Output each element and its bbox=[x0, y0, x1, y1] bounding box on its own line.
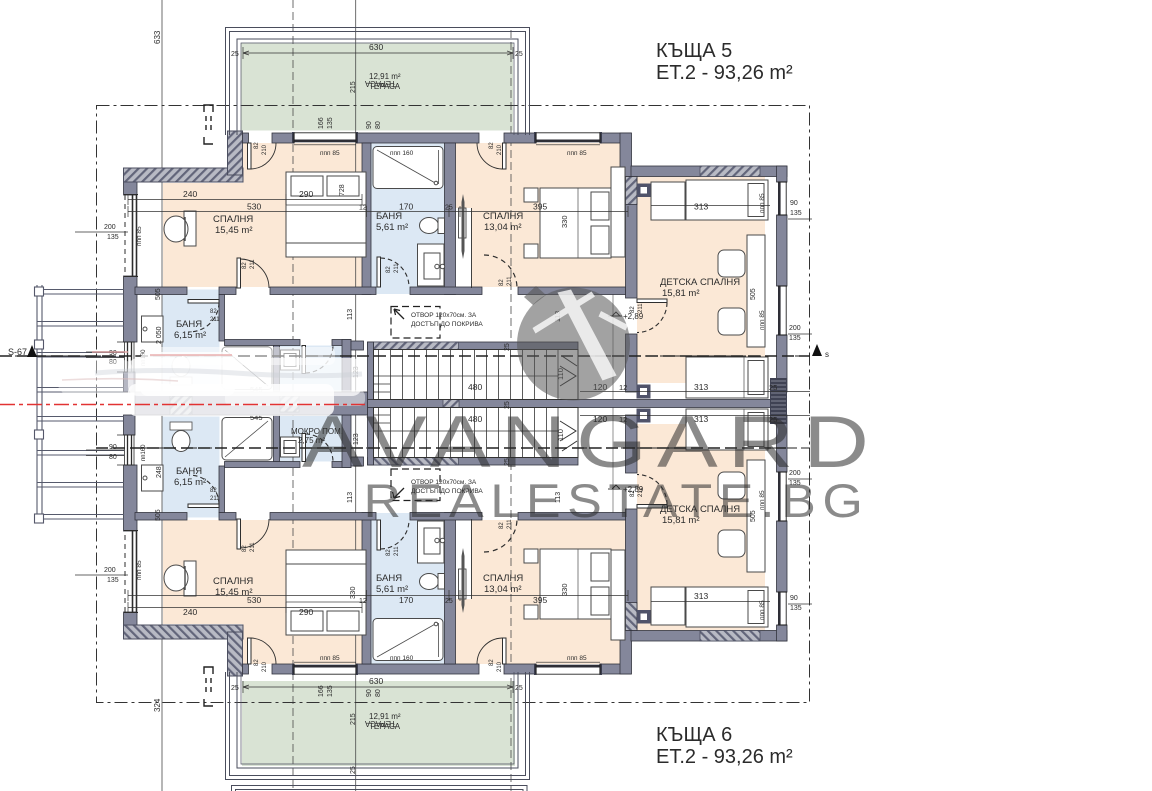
svg-text:290: 290 bbox=[299, 189, 313, 199]
svg-text:82: 82 bbox=[210, 488, 217, 494]
svg-text:248: 248 bbox=[156, 466, 163, 478]
svg-text:82: 82 bbox=[386, 549, 392, 556]
svg-text:ппп 85: ппп 85 bbox=[567, 150, 587, 157]
svg-text:505: 505 bbox=[155, 288, 162, 300]
svg-text:200: 200 bbox=[104, 224, 116, 231]
svg-text:90: 90 bbox=[790, 595, 798, 602]
svg-text:82: 82 bbox=[210, 309, 217, 315]
svg-text:12: 12 bbox=[359, 205, 367, 212]
svg-text:240: 240 bbox=[183, 189, 197, 199]
svg-text:s: s bbox=[825, 350, 829, 359]
svg-text:90: 90 bbox=[109, 444, 117, 451]
svg-text:135: 135 bbox=[107, 234, 119, 241]
svg-text:КЪЩА 5: КЪЩА 5 bbox=[656, 40, 732, 62]
svg-text:25: 25 bbox=[231, 685, 239, 692]
svg-text:25: 25 bbox=[445, 205, 453, 212]
svg-text:REALESTATE.BG: REALESTATE.BG bbox=[364, 475, 870, 528]
svg-text:82: 82 bbox=[630, 306, 636, 313]
svg-text:12: 12 bbox=[359, 598, 367, 605]
svg-text:ЕТ.2 - 93,26 m²: ЕТ.2 - 93,26 m² bbox=[656, 746, 793, 768]
svg-text:ппп 85: ппп 85 bbox=[320, 655, 340, 662]
svg-text:211: 211 bbox=[210, 496, 220, 502]
svg-text:395: 395 bbox=[533, 202, 547, 212]
svg-text:135: 135 bbox=[789, 335, 801, 342]
svg-text:210: 210 bbox=[497, 661, 503, 672]
svg-text:530: 530 bbox=[247, 595, 261, 605]
svg-text:170: 170 bbox=[399, 202, 413, 212]
svg-text:БАНЯ: БАНЯ bbox=[176, 466, 202, 477]
svg-text:ТЕРАСА: ТЕРАСА bbox=[364, 79, 396, 88]
svg-text:СПАЛНЯ: СПАЛНЯ bbox=[213, 576, 253, 587]
svg-text:ДОСТЪП ДО ПОКРИВА: ДОСТЪП ДО ПОКРИВА bbox=[411, 321, 483, 328]
svg-text:90: 90 bbox=[366, 121, 373, 129]
svg-text:82: 82 bbox=[254, 142, 260, 149]
svg-text:БАНЯ: БАНЯ bbox=[376, 211, 402, 222]
svg-text:135: 135 bbox=[790, 210, 802, 217]
svg-text:ппп 85: ппп 85 bbox=[759, 310, 766, 330]
svg-text:728: 728 bbox=[339, 184, 346, 196]
svg-text:290: 290 bbox=[299, 607, 313, 617]
svg-text:215: 215 bbox=[350, 81, 357, 93]
svg-text:СПАЛНЯ: СПАЛНЯ bbox=[483, 211, 523, 222]
svg-text:82: 82 bbox=[489, 659, 495, 666]
svg-text:215: 215 bbox=[350, 713, 357, 725]
svg-text:82: 82 bbox=[499, 279, 505, 286]
svg-text:90: 90 bbox=[790, 200, 798, 207]
svg-text:211: 211 bbox=[250, 542, 256, 552]
svg-text:82: 82 bbox=[242, 262, 248, 269]
svg-text:82: 82 bbox=[242, 545, 248, 552]
svg-text:БАНЯ: БАНЯ bbox=[376, 573, 402, 584]
svg-text:25: 25 bbox=[515, 685, 523, 692]
svg-text:211: 211 bbox=[394, 263, 400, 273]
svg-text:200: 200 bbox=[104, 567, 116, 574]
svg-text:12: 12 bbox=[619, 383, 627, 392]
svg-text:630: 630 bbox=[369, 676, 383, 686]
svg-text:СПАЛНЯ: СПАЛНЯ bbox=[483, 573, 523, 584]
svg-text:15,81 m²: 15,81 m² bbox=[662, 288, 700, 299]
svg-text:ппп 160: ппп 160 bbox=[390, 150, 414, 157]
svg-text:5,61 m²: 5,61 m² bbox=[376, 584, 408, 595]
svg-text:395: 395 bbox=[533, 595, 547, 605]
svg-text:AVANGARD: AVANGARD bbox=[302, 402, 879, 483]
svg-text:25: 25 bbox=[350, 766, 357, 774]
svg-text:ДЕТСКА СПАЛНЯ: ДЕТСКА СПАЛНЯ bbox=[660, 277, 740, 288]
svg-text:ЕТ.2 - 93,26 m²: ЕТ.2 - 93,26 m² bbox=[656, 62, 793, 84]
svg-text:330: 330 bbox=[348, 586, 357, 599]
svg-text:82: 82 bbox=[489, 142, 495, 149]
svg-text:ппп 85: ппп 85 bbox=[320, 150, 340, 157]
svg-text:13,04 m²: 13,04 m² bbox=[484, 222, 522, 233]
svg-text:БАНЯ: БАНЯ bbox=[176, 319, 202, 330]
svg-text:ппп 85: ппп 85 bbox=[759, 193, 766, 213]
svg-text:6,15 m²: 6,15 m² bbox=[174, 330, 206, 341]
svg-text:630: 630 bbox=[369, 42, 383, 52]
svg-text:240: 240 bbox=[183, 607, 197, 617]
svg-text:211: 211 bbox=[210, 317, 220, 323]
svg-text:S-67: S-67 bbox=[8, 347, 27, 357]
svg-text:170: 170 bbox=[399, 595, 413, 605]
svg-text:166: 166 bbox=[318, 685, 325, 697]
svg-text:330: 330 bbox=[560, 215, 569, 228]
svg-text:200: 200 bbox=[789, 325, 801, 332]
svg-text:210: 210 bbox=[262, 661, 268, 672]
svg-text:80: 80 bbox=[375, 689, 382, 697]
svg-text:80: 80 bbox=[109, 454, 117, 461]
svg-text:135: 135 bbox=[107, 577, 119, 584]
svg-text:ТЕРАСА: ТЕРАСА bbox=[364, 719, 396, 728]
svg-text:324: 324 bbox=[153, 698, 162, 712]
svg-text:25: 25 bbox=[504, 343, 511, 351]
svg-text:ппп 85: ппп 85 bbox=[567, 655, 587, 662]
svg-text:ппп 160: ппп 160 bbox=[390, 655, 414, 662]
svg-text:135: 135 bbox=[327, 685, 334, 697]
svg-text:211: 211 bbox=[507, 276, 513, 286]
svg-text:210: 210 bbox=[262, 144, 268, 155]
svg-text:210: 210 bbox=[497, 144, 503, 155]
svg-text:25: 25 bbox=[769, 383, 777, 392]
svg-text:313: 313 bbox=[694, 382, 708, 392]
svg-text:25: 25 bbox=[231, 51, 239, 58]
svg-text:80: 80 bbox=[375, 121, 382, 129]
svg-text:КЪЩА 6: КЪЩА 6 bbox=[656, 724, 732, 746]
svg-text:пп160: пп160 bbox=[141, 444, 147, 461]
svg-text:166: 166 bbox=[318, 117, 325, 129]
svg-text:313: 313 bbox=[694, 202, 708, 212]
svg-text:ппп 85: ппп 85 bbox=[759, 600, 766, 620]
svg-text:25: 25 bbox=[515, 51, 523, 58]
svg-text:25: 25 bbox=[445, 598, 453, 605]
svg-text:5,61 m²: 5,61 m² bbox=[376, 222, 408, 233]
svg-text:211: 211 bbox=[250, 259, 256, 269]
svg-text:ппп 85: ппп 85 bbox=[136, 560, 143, 580]
svg-text:633: 633 bbox=[153, 30, 162, 44]
svg-text:211: 211 bbox=[394, 546, 400, 556]
svg-text:530: 530 bbox=[247, 202, 261, 212]
svg-text:505: 505 bbox=[750, 288, 757, 300]
svg-text:СПАЛНЯ: СПАЛНЯ bbox=[213, 214, 253, 225]
svg-text:13,04 m²: 13,04 m² bbox=[484, 584, 522, 595]
svg-text:211: 211 bbox=[638, 303, 644, 313]
svg-text:113: 113 bbox=[347, 309, 354, 320]
svg-text:330: 330 bbox=[560, 583, 569, 596]
svg-text:135: 135 bbox=[327, 117, 334, 129]
svg-text:135: 135 bbox=[790, 605, 802, 612]
svg-text:6,15 m²: 6,15 m² bbox=[174, 477, 206, 488]
svg-text:480: 480 bbox=[468, 382, 482, 392]
svg-text:313: 313 bbox=[694, 591, 708, 601]
svg-text:15,45 m²: 15,45 m² bbox=[215, 225, 253, 236]
svg-text:505: 505 bbox=[155, 509, 162, 521]
svg-text:82: 82 bbox=[386, 266, 392, 273]
svg-text:2 050: 2 050 bbox=[156, 326, 163, 344]
svg-text:113: 113 bbox=[347, 492, 354, 503]
svg-text:ОТВОР 120х70см. ЗА: ОТВОР 120х70см. ЗА bbox=[411, 312, 477, 319]
svg-text:90: 90 bbox=[366, 689, 373, 697]
svg-text:82: 82 bbox=[254, 659, 260, 666]
svg-text:ппп 85: ппп 85 bbox=[136, 226, 143, 246]
